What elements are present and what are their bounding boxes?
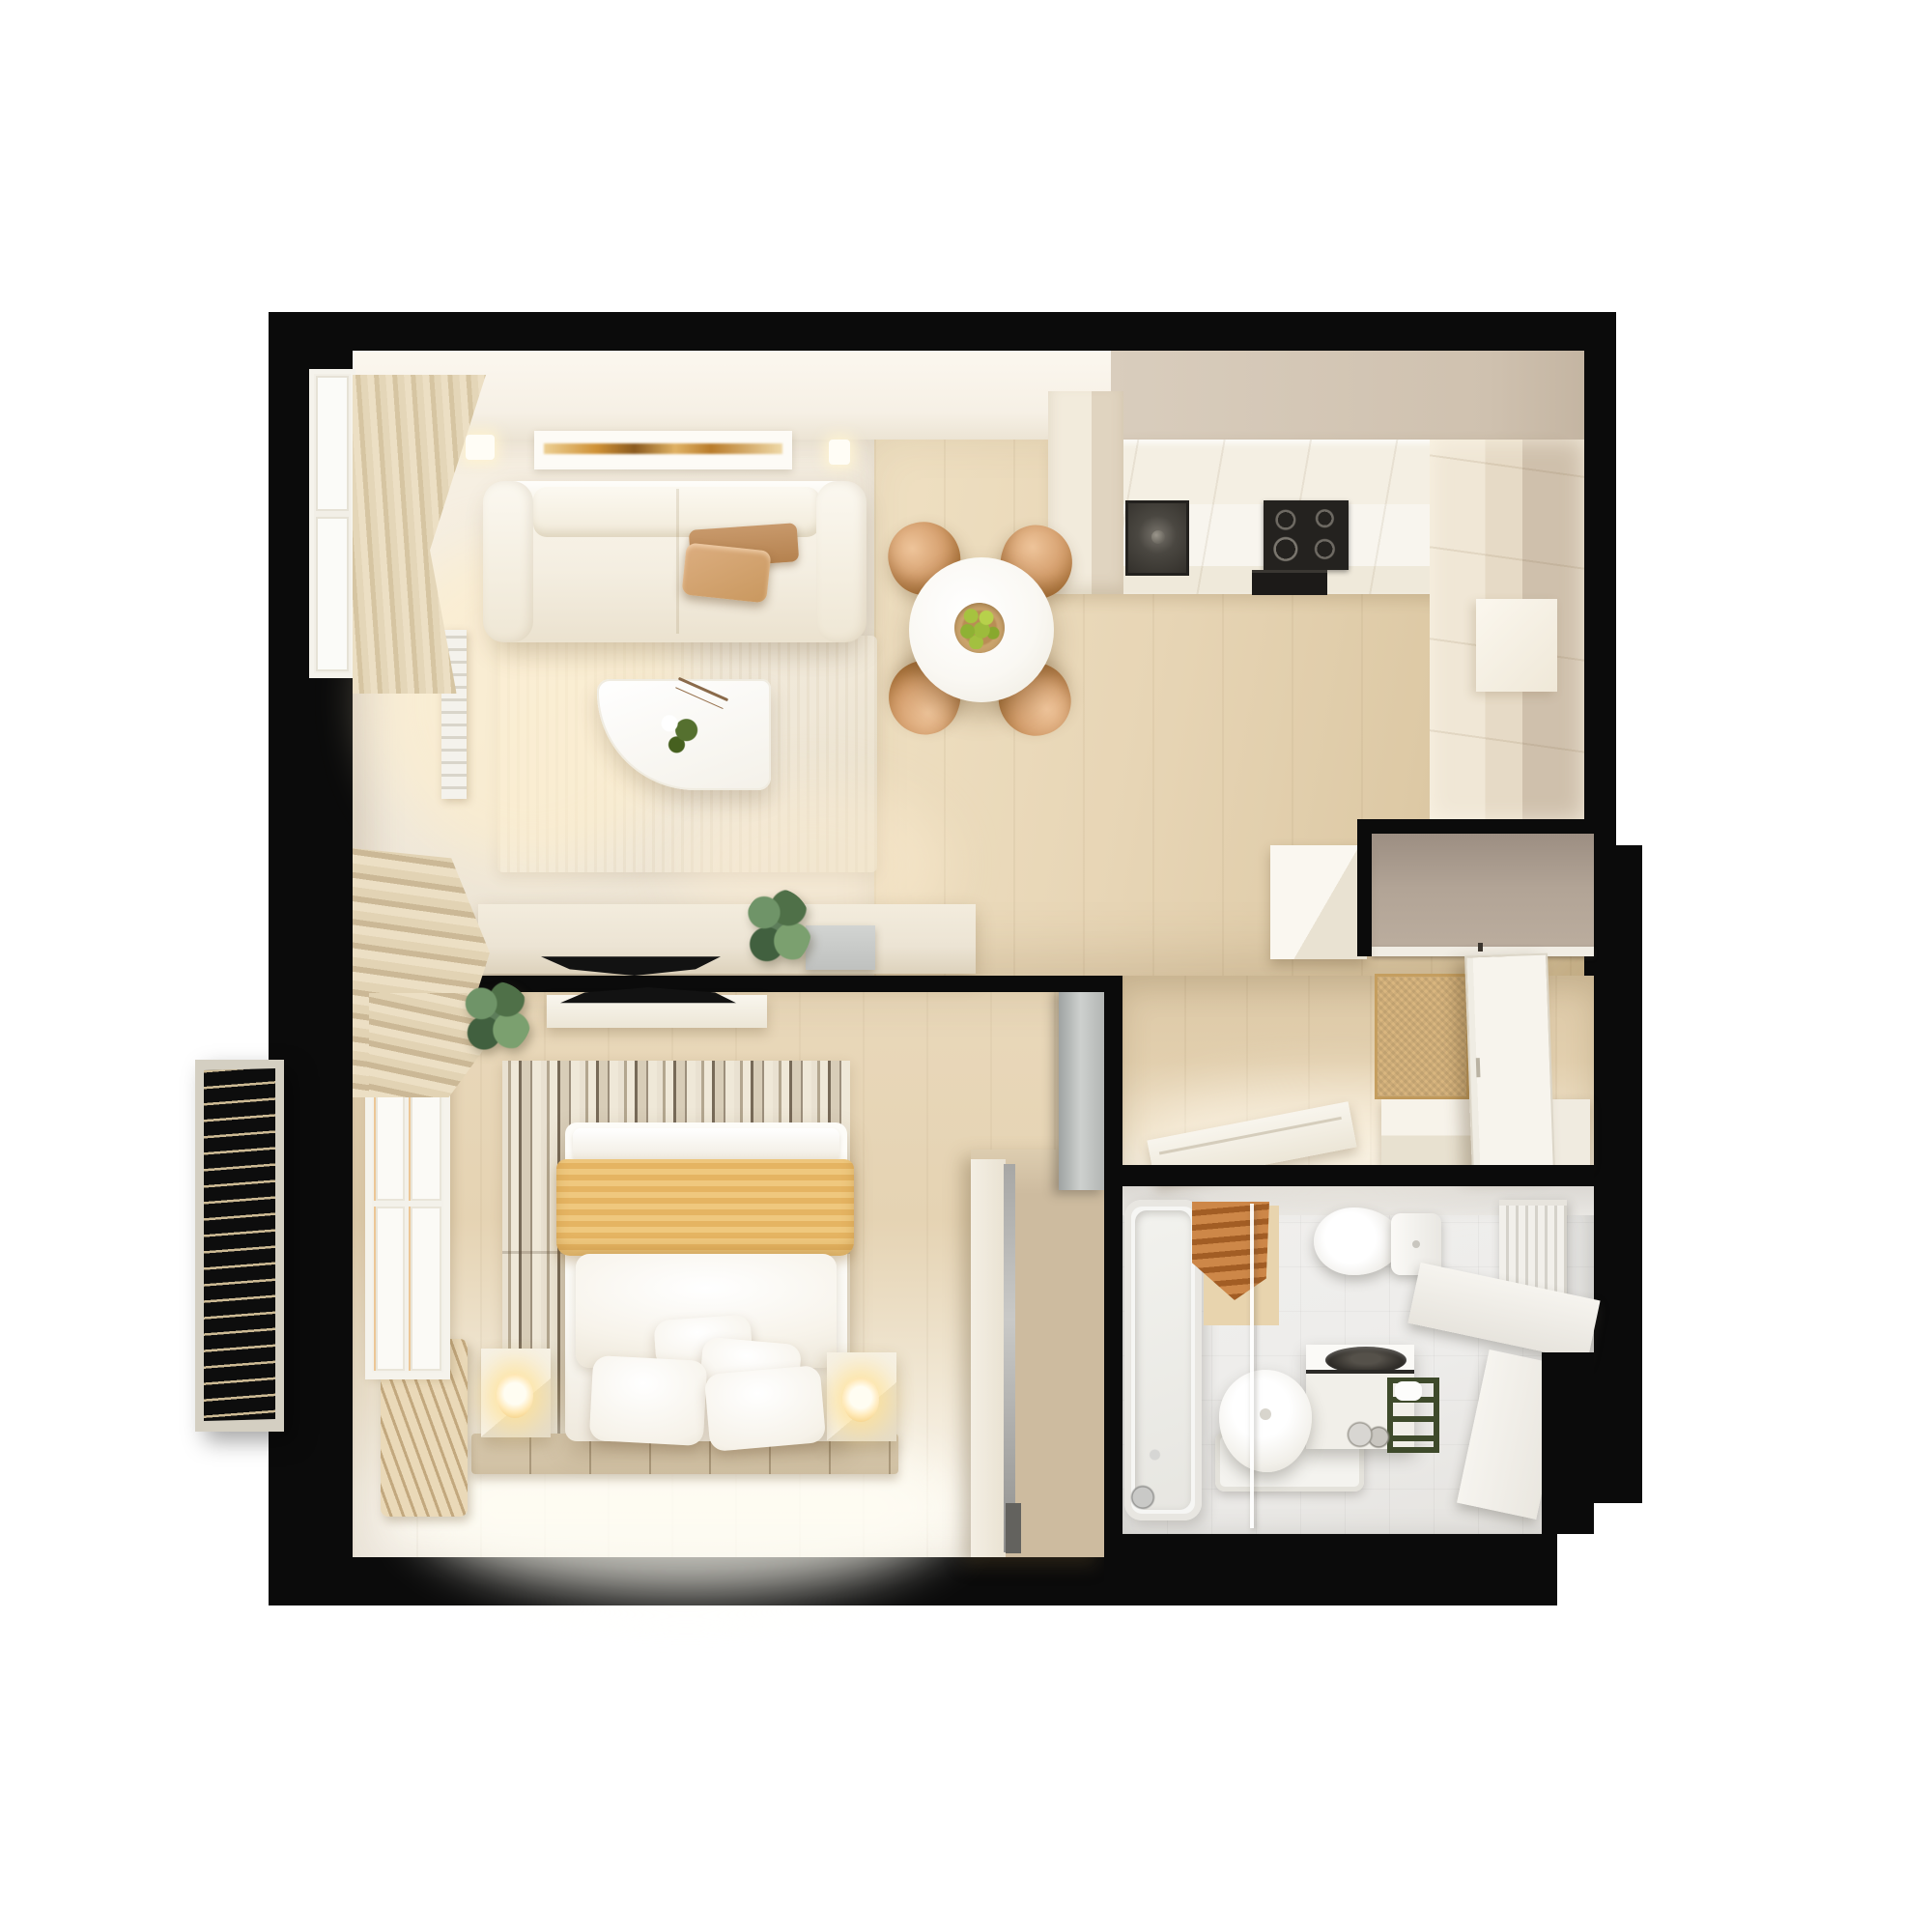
sofa: [491, 481, 863, 642]
doormat: [1375, 974, 1469, 1099]
apartment-floor-plan: [0, 0, 1932, 1932]
chrome-shower-fixture: [1128, 1412, 1177, 1519]
wall-artwork: [534, 431, 792, 469]
toiletry-bottles: [1347, 1418, 1391, 1451]
hall-bathroom-wall: [1122, 1165, 1594, 1186]
cooktop: [1264, 500, 1349, 570]
vanity-edge: [1306, 1370, 1414, 1374]
sofa-armrest: [483, 481, 533, 642]
media-box: [806, 925, 875, 970]
orange-blanket: [556, 1159, 854, 1256]
potted-plant: [460, 981, 531, 1055]
sofa-armrest: [816, 481, 867, 642]
balcony: [195, 1060, 284, 1432]
living-room-window: [309, 369, 355, 678]
ceiling-spotlight: [829, 440, 850, 465]
kitchen-cabinet-step: [1476, 599, 1557, 692]
wardrobe-front-panel: [971, 1159, 1006, 1557]
bedroom-hall-wall: [1104, 976, 1122, 1605]
hall-cabinet: [1270, 845, 1367, 959]
closet-wall: [1357, 819, 1594, 834]
window-pane: [316, 517, 349, 671]
wardrobe-handle: [1006, 1503, 1021, 1553]
bathroom-wall-step: [1542, 1352, 1594, 1534]
window-pane: [316, 376, 349, 511]
closet-wall: [1357, 819, 1372, 956]
decor-vases: [660, 710, 704, 754]
kitchen-top-wall: [1111, 351, 1584, 440]
throw-pillow: [681, 543, 771, 604]
gray-sliding-door: [1059, 987, 1107, 1190]
window-pane: [409, 1207, 441, 1371]
nightstand-with-lamp: [827, 1352, 896, 1441]
bed-pillow: [704, 1365, 827, 1452]
nightstand-with-lamp: [481, 1349, 551, 1437]
freestanding-oval-basin: [1219, 1370, 1312, 1472]
tv-console: [478, 904, 976, 974]
bed-pillow: [589, 1355, 707, 1446]
coat-closet-niche: [1372, 834, 1594, 956]
potted-plant: [744, 889, 811, 968]
oven: [1252, 570, 1327, 595]
green-towel-ladder: [1387, 1378, 1439, 1453]
green-apples: [958, 607, 1001, 649]
wardrobe-mirror-strip: [1004, 1164, 1015, 1552]
window-pane: [374, 1207, 405, 1371]
ceiling-spotlight: [466, 435, 495, 460]
right-wall-outer-edge: [1616, 312, 1645, 845]
shower-glass-screen: [1250, 1204, 1254, 1528]
balcony-grille: [204, 1068, 275, 1421]
kitchen-sink: [1125, 500, 1189, 576]
entry-door: [1464, 953, 1555, 1175]
